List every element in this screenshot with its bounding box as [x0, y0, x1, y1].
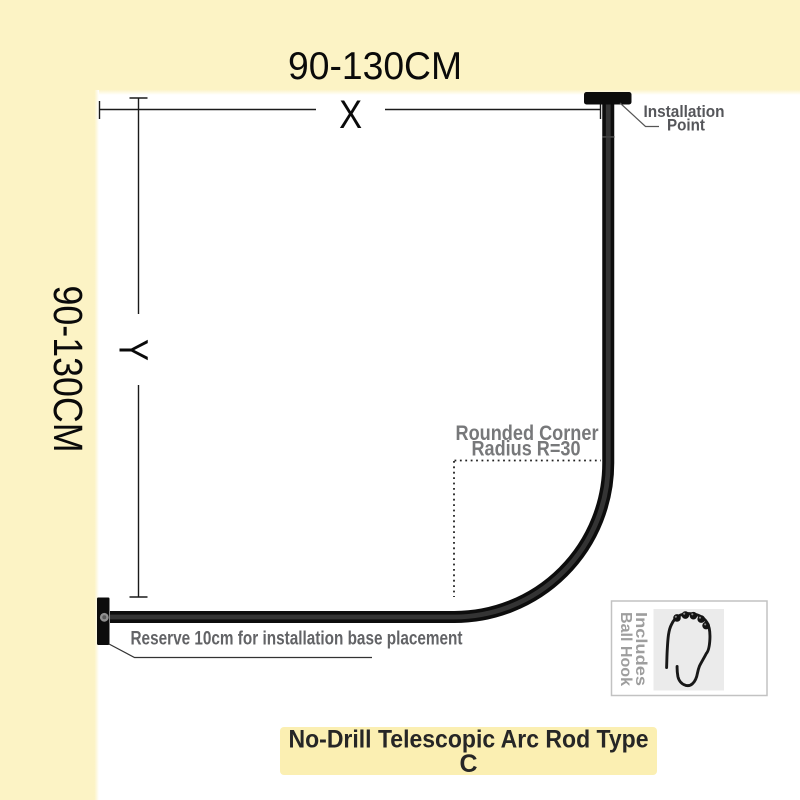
svg-text:Reserve 10cm for installation: Reserve 10cm for installation base place… [131, 629, 464, 650]
svg-text:X: X [339, 93, 362, 137]
svg-text:Ball Hook: Ball Hook [617, 612, 634, 686]
svg-text:Point: Point [667, 116, 705, 135]
svg-text:Radius R=30: Radius R=30 [472, 438, 581, 461]
svg-text:Y: Y [110, 339, 156, 361]
svg-text:C: C [459, 750, 477, 778]
svg-text:90-130CM: 90-130CM [45, 286, 91, 453]
svg-text:90-130CM: 90-130CM [288, 45, 462, 88]
